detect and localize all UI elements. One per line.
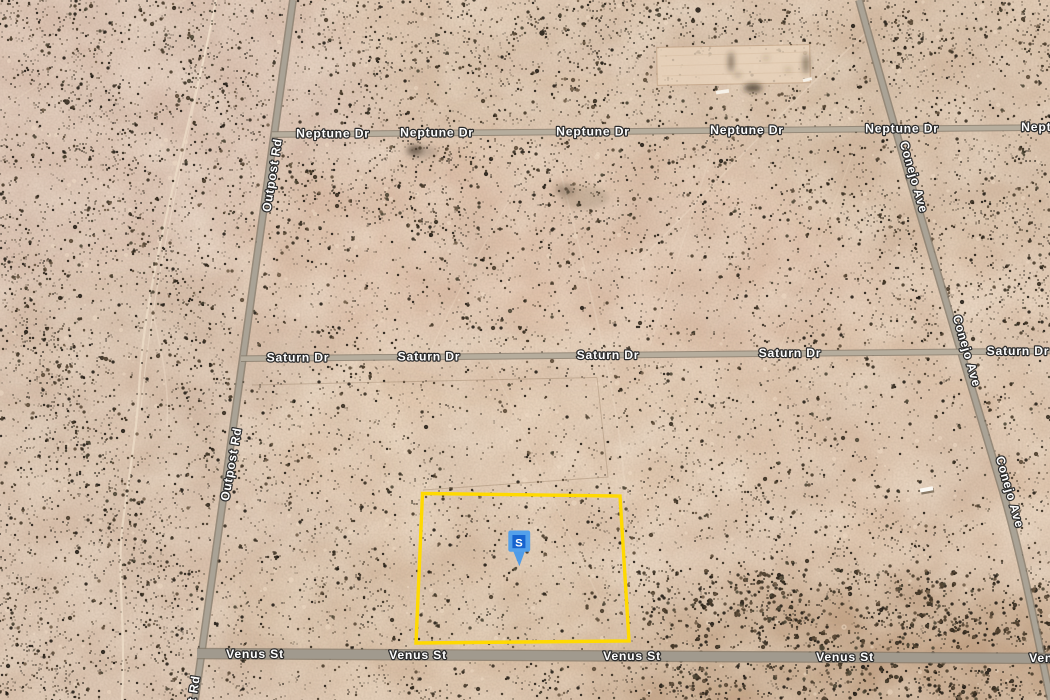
- svg-text:Venus St: Venus St: [1029, 651, 1050, 665]
- svg-text:S: S: [515, 537, 523, 549]
- svg-text:Saturn Dr: Saturn Dr: [577, 348, 640, 362]
- svg-text:Venus St: Venus St: [389, 648, 447, 662]
- svg-text:Saturn Dr: Saturn Dr: [759, 346, 822, 360]
- svg-text:Neptune Dr: Neptune Dr: [296, 127, 370, 141]
- svg-text:Saturn Dr: Saturn Dr: [267, 351, 330, 365]
- svg-text:Venus St: Venus St: [603, 649, 661, 663]
- svg-text:Neptune Dr: Neptune Dr: [865, 122, 939, 136]
- svg-text:Neptune Dr: Neptune Dr: [710, 123, 784, 137]
- svg-text:Saturn Dr: Saturn Dr: [398, 350, 461, 364]
- svg-text:Venus St: Venus St: [226, 647, 284, 661]
- svg-text:Venus St: Venus St: [816, 650, 874, 664]
- svg-text:Saturn Dr: Saturn Dr: [987, 344, 1050, 358]
- svg-text:Neptune Dr: Neptune Dr: [1021, 120, 1050, 134]
- svg-text:Neptune Dr: Neptune Dr: [556, 124, 630, 138]
- svg-text:Neptune Dr: Neptune Dr: [400, 126, 474, 140]
